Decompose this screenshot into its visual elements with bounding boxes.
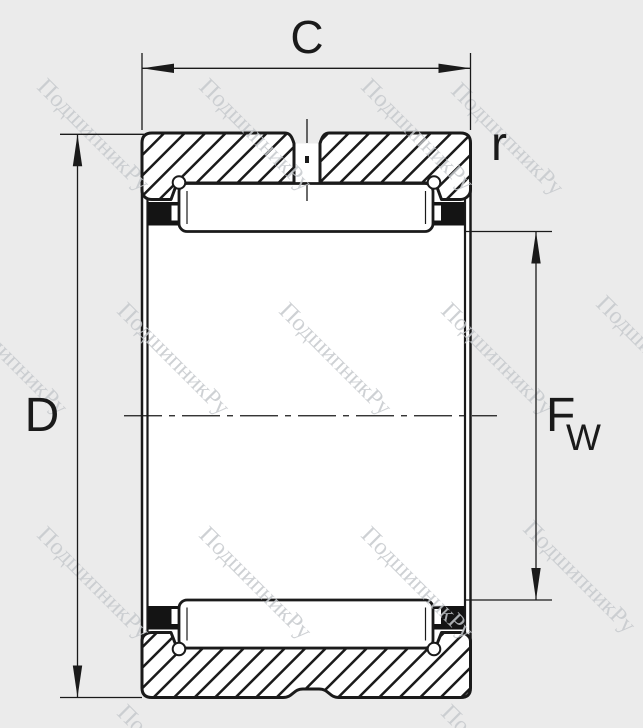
bearing-drawing-page: ПодшипникРу ПодшипникРу ПодшипникРу Подш… [0, 0, 643, 728]
label-bore-w-subscript: W [566, 417, 601, 458]
relief-circle [173, 176, 186, 189]
cage-pocket-top-right [434, 206, 442, 221]
bearing-cross-section-diagram: ПодшипникРу ПодшипникРу ПодшипникРу Подш… [0, 0, 643, 728]
relief-circle [428, 176, 441, 189]
label-outer-diameter-d: D [25, 389, 60, 442]
relief-circle [428, 643, 441, 656]
needle-roller-top [179, 184, 433, 232]
label-width-c: C [290, 11, 323, 63]
label-corner-radius-r: r [491, 118, 507, 171]
relief-circle [173, 643, 186, 656]
